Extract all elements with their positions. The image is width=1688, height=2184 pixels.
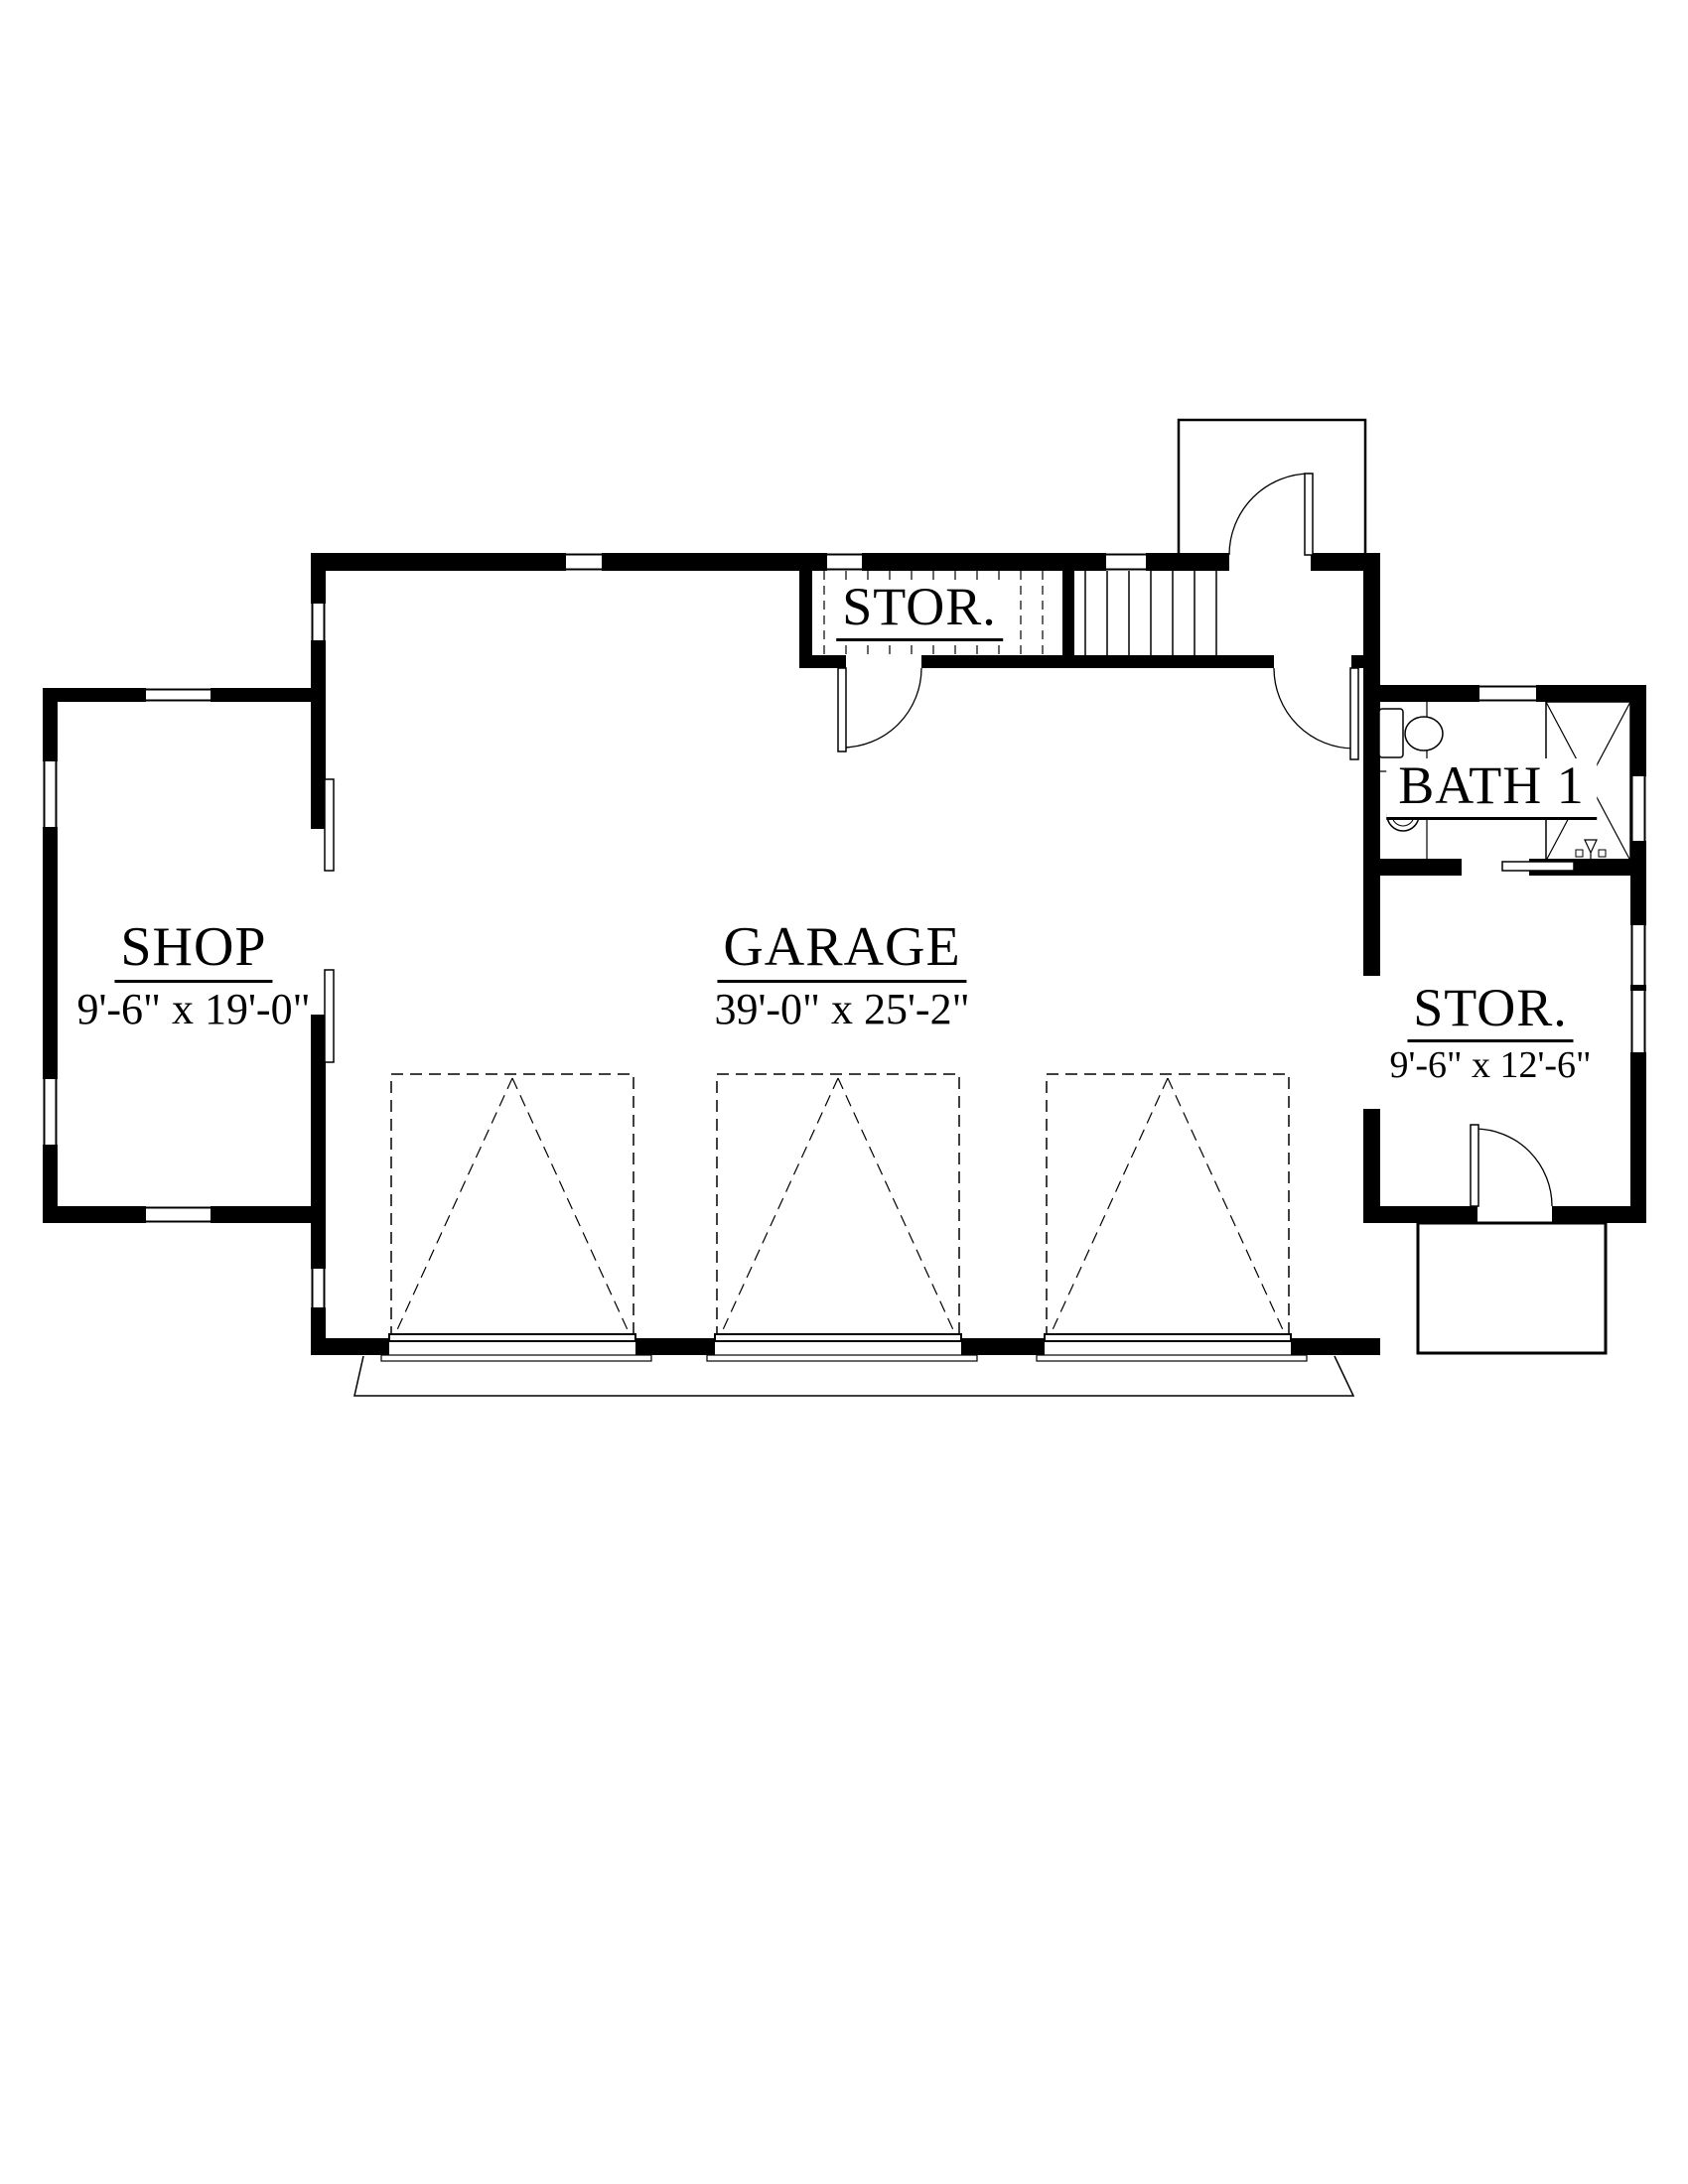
wall-right-exterior-mullion: [1630, 985, 1646, 991]
wall-storage-right-bottom: [1363, 1206, 1477, 1223]
room-label-storage-upper: STOR.: [836, 580, 1003, 641]
wall-shop-bottom: [211, 1206, 326, 1223]
wall-shop-bottom: [43, 1206, 146, 1223]
wall-garage-left: [311, 1015, 326, 1269]
room-label-storage-right: STOR. 9'-6" x 12'-6": [1389, 981, 1591, 1086]
wall-bath-top: [1536, 685, 1646, 702]
wall-right-exterior: [1630, 685, 1646, 776]
side-stoop: [1418, 1223, 1606, 1353]
shower-head: [1576, 840, 1606, 860]
room-label-shop: SHOP 9'-6" x 19'-0": [76, 919, 310, 1032]
wall-storage-left: [799, 571, 812, 668]
garage-door-panel: [389, 1334, 635, 1341]
wall-garage-top: [1146, 553, 1229, 571]
wall-shop-left: [43, 827, 58, 1079]
window: [827, 553, 862, 571]
window: [1479, 685, 1536, 702]
window: [1630, 991, 1646, 1052]
wall-shop-top: [43, 688, 146, 702]
window: [43, 761, 58, 827]
garage-door-panel: [1045, 1334, 1291, 1341]
window: [43, 1079, 58, 1145]
storage-right-door: [1471, 1125, 1552, 1206]
garage-title: GARAGE: [717, 919, 966, 983]
shop-bypass-doors: [325, 779, 334, 1062]
entry-porch: [1179, 420, 1365, 554]
garage-door-panel: [715, 1334, 961, 1341]
window: [566, 553, 602, 571]
stair-treads: [1085, 571, 1216, 655]
garage-bays: [391, 1074, 1289, 1338]
wall-right-exterior: [1630, 1052, 1646, 1223]
room-label-garage: GARAGE 39'-0" x 25'-2": [714, 919, 969, 1032]
floor-plan-drawing: [0, 0, 1688, 2184]
window: [311, 1269, 326, 1307]
storage-right-title: STOR.: [1407, 981, 1574, 1042]
room-label-bath: BATH 1: [1386, 758, 1597, 820]
wall-bath-bottom: [1375, 859, 1462, 876]
wall-garage-front-pier: [635, 1338, 715, 1355]
wall-garage-left: [311, 553, 326, 604]
driveway-apron: [354, 1356, 1353, 1396]
wall-storage-right-bottom: [1552, 1206, 1646, 1223]
garage-door-sill: [1037, 1355, 1307, 1361]
wall-garage-right: [1363, 1109, 1380, 1223]
garage-bay: [391, 1074, 633, 1338]
shop-dims: 9'-6" x 19'-0": [76, 987, 310, 1032]
shop-title: SHOP: [114, 919, 272, 983]
wall-shop-top: [211, 688, 311, 702]
storage-upper-title: STOR.: [836, 580, 1003, 641]
wall-garage-front-pier: [311, 1338, 389, 1355]
wall-garage-front-pier: [961, 1338, 1045, 1355]
garage-bay: [1047, 1074, 1289, 1338]
window: [146, 688, 211, 702]
entry-door: [1229, 474, 1313, 555]
garage-dims: 39'-0" x 25'-2": [714, 987, 969, 1032]
window: [1630, 776, 1646, 841]
window: [311, 604, 326, 640]
wall-garage-top: [311, 553, 566, 571]
floor-plan: SHOP 9'-6" x 19'-0" GARAGE 39'-0" x 25'-…: [0, 0, 1688, 2184]
wall-stair-left: [1062, 571, 1074, 655]
wall-garage-left: [311, 640, 326, 829]
storage-right-dims: 9'-6" x 12'-6": [1389, 1046, 1591, 1086]
wall-garage-top: [602, 553, 827, 571]
garage-door-sill: [381, 1355, 651, 1361]
toilet: [1379, 709, 1443, 757]
wall-bath-top: [1363, 685, 1479, 702]
window: [1106, 553, 1146, 571]
wall-garage-front-pier: [1291, 1338, 1380, 1355]
window: [146, 1206, 211, 1223]
bath-pocket-door: [1502, 862, 1574, 871]
window: [1630, 925, 1646, 985]
garage-bay: [717, 1074, 959, 1338]
wall-right-exterior: [1630, 841, 1646, 925]
garage-door-sill: [707, 1355, 977, 1361]
wall-garage-top: [862, 553, 1106, 571]
wall-garage-right: [1363, 553, 1380, 976]
stair-hall-door: [1274, 668, 1358, 759]
wall-shop-left: [43, 688, 58, 761]
bath-title: BATH 1: [1386, 758, 1597, 820]
wall-stair-bottom: [921, 655, 1274, 668]
storage-door: [838, 668, 921, 751]
garage-doors: [381, 1334, 1307, 1361]
